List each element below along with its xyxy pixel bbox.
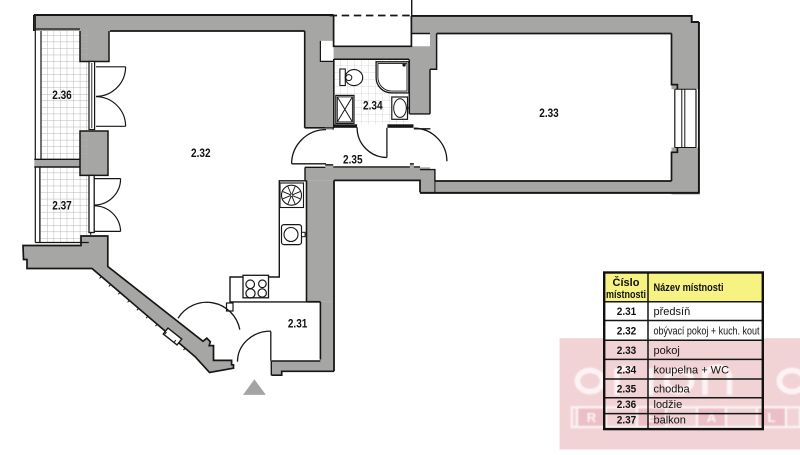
svg-text:2.37: 2.37 — [52, 201, 72, 213]
svg-text:2.33: 2.33 — [617, 345, 637, 357]
svg-text:A: A — [707, 410, 717, 425]
svg-text:koupelna + WC: koupelna + WC — [654, 365, 730, 377]
svg-text:2.34: 2.34 — [363, 101, 383, 113]
svg-text:lodžie: lodžie — [654, 399, 683, 411]
svg-text:chodba: chodba — [654, 383, 691, 395]
svg-text:2.37: 2.37 — [617, 415, 637, 427]
svg-text:2.32: 2.32 — [617, 326, 637, 338]
svg-text:2.35: 2.35 — [617, 383, 637, 395]
svg-text:Název místnosti: Název místnosti — [654, 282, 724, 294]
svg-text:2.36: 2.36 — [52, 90, 72, 102]
svg-text:předsíň: předsíň — [654, 306, 691, 318]
svg-text:2.32: 2.32 — [191, 148, 211, 160]
svg-text:2.31: 2.31 — [288, 319, 308, 331]
svg-text:balkon: balkon — [654, 415, 686, 427]
svg-text:R: R — [587, 410, 597, 425]
svg-text:místnosti: místnosti — [606, 289, 646, 301]
svg-text:L: L — [768, 410, 776, 425]
svg-text:2.31: 2.31 — [617, 306, 637, 318]
svg-text:2.36: 2.36 — [617, 399, 637, 411]
svg-text:2.35: 2.35 — [343, 155, 363, 167]
svg-text:2.33: 2.33 — [539, 108, 559, 120]
svg-text:Číslo: Číslo — [613, 276, 640, 289]
svg-text:2.34: 2.34 — [617, 365, 637, 377]
svg-text:pokoj: pokoj — [654, 345, 680, 357]
svg-text:obývací pokoj + kuch. kout: obývací pokoj + kuch. kout — [654, 326, 760, 338]
